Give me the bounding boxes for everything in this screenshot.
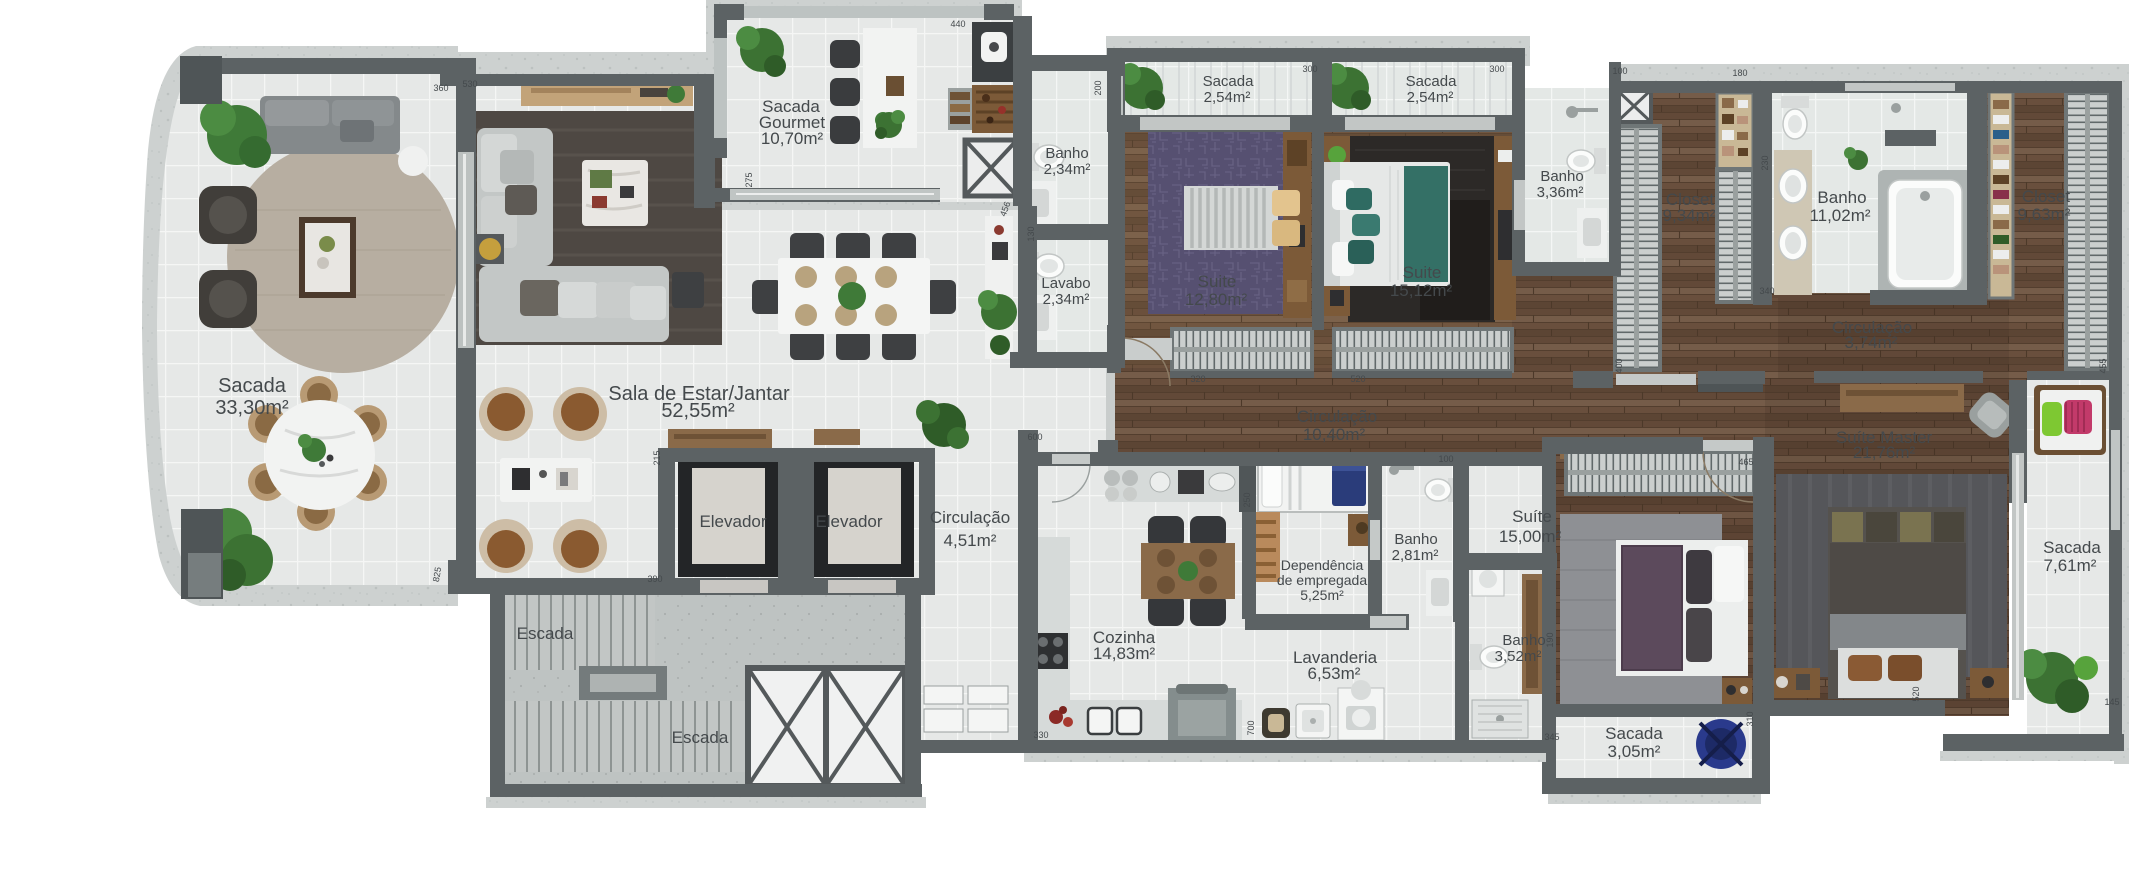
svg-text:11,02m²: 11,02m²: [1809, 206, 1870, 225]
svg-text:4,51m²: 4,51m²: [944, 531, 997, 550]
svg-text:10,70m²: 10,70m²: [761, 129, 824, 148]
svg-text:Sacada: Sacada: [2043, 538, 2101, 557]
svg-text:400: 400: [1614, 358, 1624, 373]
svg-text:9,34m²: 9,34m²: [1663, 206, 1716, 225]
svg-text:7,61m²: 7,61m²: [2044, 556, 2097, 575]
svg-text:10,40m²: 10,40m²: [1303, 425, 1366, 444]
svg-text:300: 300: [1489, 64, 1504, 74]
svg-text:130: 130: [1026, 226, 1036, 241]
svg-text:Sacada: Sacada: [1406, 73, 1458, 90]
svg-text:180: 180: [1732, 68, 1747, 78]
svg-text:Suíte: Suíte: [1512, 507, 1552, 526]
svg-text:2,34m²: 2,34m²: [1043, 291, 1090, 308]
svg-text:3,05m²: 3,05m²: [1608, 742, 1661, 761]
svg-text:14,83m²: 14,83m²: [1093, 644, 1156, 663]
svg-text:230: 230: [1760, 155, 1770, 170]
svg-text:2,81m²: 2,81m²: [1392, 547, 1439, 564]
svg-text:12,80m²: 12,80m²: [1185, 290, 1248, 309]
svg-text:700: 700: [1246, 720, 1256, 735]
svg-text:Escada: Escada: [672, 728, 729, 747]
svg-text:52,55m²: 52,55m²: [661, 400, 735, 422]
svg-text:275: 275: [744, 172, 754, 187]
svg-text:6,53m²: 6,53m²: [1308, 664, 1361, 683]
svg-text:465: 465: [1738, 457, 1753, 467]
svg-text:530: 530: [462, 79, 477, 89]
svg-text:360: 360: [433, 83, 448, 93]
svg-text:33,30m²: 33,30m²: [215, 397, 289, 419]
svg-text:Escada: Escada: [517, 624, 574, 643]
svg-text:345: 345: [1544, 732, 1559, 742]
svg-text:Sacada: Sacada: [1605, 724, 1663, 743]
svg-text:330: 330: [1033, 730, 1048, 740]
svg-text:15,12m²: 15,12m²: [1390, 281, 1453, 300]
svg-text:3,74m²: 3,74m²: [1845, 333, 1898, 352]
svg-text:600: 600: [1027, 432, 1042, 442]
svg-text:2,34m²: 2,34m²: [1044, 161, 1091, 178]
svg-text:320: 320: [1190, 374, 1205, 384]
svg-text:Suite: Suite: [1403, 263, 1442, 282]
svg-text:Banho: Banho: [1817, 188, 1866, 207]
svg-text:190: 190: [1545, 632, 1555, 647]
svg-text:100: 100: [1438, 454, 1453, 464]
svg-text:215: 215: [652, 450, 662, 465]
svg-text:340: 340: [1759, 286, 1774, 296]
svg-text:3,36m²: 3,36m²: [1537, 184, 1584, 201]
svg-text:520: 520: [1350, 374, 1365, 384]
svg-text:21,76m²: 21,76m²: [1853, 443, 1916, 462]
svg-text:300: 300: [1302, 64, 1317, 74]
svg-text:520: 520: [1911, 686, 1921, 701]
svg-text:Banho: Banho: [1540, 168, 1583, 185]
svg-text:Banho: Banho: [1502, 632, 1545, 649]
svg-text:390: 390: [647, 574, 662, 584]
svg-text:de empregada: de empregada: [1277, 572, 1368, 588]
svg-text:Dependência: Dependência: [1281, 557, 1364, 573]
svg-text:9,63m²: 9,63m²: [2018, 205, 2071, 224]
svg-text:Banho: Banho: [1045, 145, 1088, 162]
svg-text:145: 145: [2104, 697, 2119, 707]
svg-text:3,52m²: 3,52m²: [1495, 648, 1542, 665]
svg-text:Circulação: Circulação: [930, 508, 1010, 527]
svg-text:Elevador: Elevador: [815, 512, 882, 531]
svg-text:2,54m²: 2,54m²: [1407, 89, 1454, 106]
svg-text:310: 310: [1745, 711, 1755, 726]
svg-text:Elevador: Elevador: [699, 512, 766, 531]
svg-text:100: 100: [1612, 66, 1627, 76]
svg-text:Lavabo: Lavabo: [1041, 275, 1090, 292]
svg-text:2,54m²: 2,54m²: [1204, 89, 1251, 106]
svg-text:Sacada: Sacada: [218, 375, 287, 397]
svg-text:15,00m²: 15,00m²: [1499, 527, 1562, 546]
svg-text:Sacada: Sacada: [1203, 73, 1255, 90]
svg-text:440: 440: [950, 19, 965, 29]
svg-text:Banho: Banho: [1394, 531, 1437, 548]
svg-text:Closet: Closet: [2022, 187, 2070, 206]
svg-text:Suite: Suite: [1198, 272, 1237, 291]
svg-text:250: 250: [1242, 492, 1252, 507]
svg-text:Circulação: Circulação: [1297, 407, 1377, 426]
svg-text:200: 200: [1093, 80, 1103, 95]
svg-text:455: 455: [2098, 358, 2108, 373]
svg-text:5,25m²: 5,25m²: [1300, 587, 1344, 603]
